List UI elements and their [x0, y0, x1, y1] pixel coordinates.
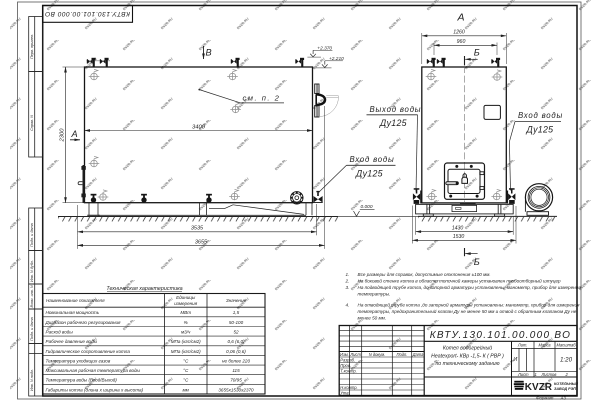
svg-text:70/95: 70/95 [230, 378, 242, 383]
svg-text:Подп. и дата: Подп. и дата [30, 223, 34, 247]
svg-text:Б: Б [474, 47, 480, 57]
svg-text:+2.210: +2.210 [329, 56, 344, 62]
svg-text:4.: 4. [346, 303, 350, 308]
svg-text:На отводящей трубе котла ,до з: На отводящей трубе котла ,до запорной ар… [358, 302, 580, 308]
svg-text:Heatexport- КВр -1,5- К ( РВР: Heatexport- КВр -1,5- К ( РВР ) [431, 353, 504, 359]
svg-text:1:20: 1:20 [560, 357, 573, 364]
svg-text:Выход воды: Выход воды [370, 105, 422, 114]
svg-text:Ду125: Ду125 [379, 118, 407, 128]
svg-text:МПа (кгс/см2): МПа (кгс/см2) [171, 339, 201, 344]
svg-text:Гидравлическое сопротивление к: Гидравлическое сопротивление котла [46, 349, 131, 354]
svg-text:Подп.: Подп. [397, 352, 408, 357]
svg-text:Т.контр.: Т.контр. [340, 369, 357, 374]
svg-text:52: 52 [233, 330, 239, 335]
svg-text:+2.370: +2.370 [317, 46, 332, 52]
svg-text:N докум.: N докум. [369, 352, 386, 357]
svg-text:Листов: Листов [541, 372, 558, 377]
svg-text:А: А [71, 129, 78, 139]
svg-text:Габариты котла (длина х ширина: Габариты котла (длина х ширина х высота) [46, 387, 144, 392]
svg-text:Перв. примен.: Перв. примен. [30, 34, 34, 59]
svg-text:На подводящей трубе котла, д: На подводящей трубе котла, до запорной а… [358, 284, 582, 290]
svg-text:КОТЕЛЬНЫЙ: КОТЕЛЬНЫЙ [554, 382, 578, 386]
svg-text:Инв. N подл.: Инв. N подл. [30, 369, 34, 391]
svg-text:Температура воды (Вход/Выход): Температура воды (Вход/Выход) [46, 378, 118, 383]
svg-text:МПа (кгс/см2): МПа (кгс/см2) [171, 349, 201, 354]
svg-text:Все размеры для справок, допус: Все размеры для справок, допустимые откл… [358, 272, 491, 277]
svg-text:3655х1530х2370: 3655х1530х2370 [218, 387, 254, 392]
svg-text:1,5: 1,5 [233, 310, 240, 315]
svg-text:И: И [513, 357, 517, 363]
svg-text:1.: 1. [346, 272, 350, 277]
svg-text:Пров.: Пров. [340, 363, 351, 368]
svg-text:%: % [184, 320, 188, 325]
svg-text:по техническому заданию: по техническому заданию [435, 361, 499, 367]
svg-text:мм: мм [183, 387, 190, 392]
svg-text:температуры, предохранительный: температуры, предохранительный клапан Ду… [358, 308, 577, 314]
svg-text:Рабочее давление воды: Рабочее давление воды [46, 339, 98, 344]
svg-text:Котел водогрейный: Котел водогрейный [443, 345, 492, 352]
svg-text:Ду125: Ду125 [355, 168, 383, 178]
svg-text:KVZR: KVZR [525, 382, 553, 393]
svg-text:2300: 2300 [60, 128, 66, 143]
svg-text:Дата: Дата [412, 352, 425, 357]
svg-text:Наименование показателя: Наименование показателя [46, 298, 105, 303]
svg-text:0.000: 0.000 [361, 204, 373, 210]
svg-text:Инв. N дубл.: Инв. N дубл. [30, 260, 34, 282]
svg-text:Лист: Лист [349, 352, 361, 357]
svg-text:А: А [457, 12, 465, 24]
svg-text:температуры.: температуры. [358, 291, 391, 296]
svg-text:1530: 1530 [453, 234, 465, 240]
svg-text:не более 220: не более 220 [222, 358, 250, 363]
svg-text:960: 960 [457, 39, 466, 45]
svg-text:Диапазон рабочего регулировани: Диапазон рабочего регулирования [45, 320, 122, 325]
svg-text:Единицы: Единицы [176, 295, 196, 300]
svg-text:Лист: Лист [517, 372, 529, 377]
svg-text:Справ. N: Справ. N [30, 115, 34, 131]
svg-text:1: 1 [535, 372, 537, 377]
svg-text:Лит.: Лит. [517, 343, 528, 348]
svg-text:Формат: Формат [536, 396, 554, 400]
svg-text:Вход воды: Вход воды [518, 111, 563, 120]
svg-text:Н.контр.: Н.контр. [340, 385, 357, 390]
svg-text:В: В [206, 48, 212, 58]
svg-text:см. п. 2: см. п. 2 [243, 94, 281, 103]
svg-text:МВт: МВт [180, 310, 191, 315]
svg-text:Масштаб: Масштаб [556, 343, 576, 348]
svg-text:Номинальная мощность: Номинальная мощность [46, 310, 100, 315]
svg-text:м3/ч: м3/ч [181, 330, 191, 335]
svg-text:Изм.: Изм. [340, 352, 349, 357]
svg-text:°С: °С [183, 358, 189, 363]
svg-text:Вход воды: Вход воды [350, 155, 395, 164]
svg-text:0,6 (6,0): 0,6 (6,0) [227, 339, 245, 344]
svg-text:Техническая характеристика: Техническая характеристика [106, 286, 182, 292]
svg-text:менее 50 мм.: менее 50 мм. [358, 316, 387, 321]
svg-text:Подп. и дата: Подп. и дата [30, 317, 34, 341]
svg-text:измерения: измерения [174, 301, 198, 306]
svg-text:115: 115 [232, 368, 240, 373]
svg-text:3400: 3400 [192, 124, 206, 130]
svg-text:Утв.: Утв. [340, 391, 349, 396]
svg-text:На боковой стенке котла в обла: На боковой стенке котла в области топочн… [358, 277, 562, 283]
svg-text:1260: 1260 [453, 30, 465, 36]
svg-text:3.: 3. [346, 285, 350, 290]
svg-text:50-100: 50-100 [229, 320, 244, 325]
svg-text:°С: °С [183, 378, 189, 383]
svg-text:3655: 3655 [195, 239, 208, 245]
svg-text:2.: 2. [345, 278, 350, 283]
svg-text:Ду125: Ду125 [526, 125, 554, 135]
svg-text:Температура уходящих газов: Температура уходящих газов [46, 358, 111, 363]
svg-text:1430: 1430 [452, 226, 464, 232]
svg-text:КВТУ.130.101.00.000 ВО: КВТУ.130.101.00.000 ВО [45, 10, 130, 17]
svg-text:°С: °С [183, 368, 189, 373]
svg-text:Максимальная рабочая температу: Максимальная рабочая температура воды [46, 368, 141, 373]
svg-text:Значение: Значение [226, 298, 247, 303]
svg-text:Разраб.: Разраб. [340, 358, 355, 363]
svg-text:Б: Б [474, 257, 480, 267]
svg-text:КВТУ.130.101.00.000 ВО: КВТУ.130.101.00.000 ВО [430, 330, 572, 341]
svg-text:0,06 (0,6): 0,06 (0,6) [226, 349, 246, 354]
svg-text:Взам. инв. N: Взам. инв. N [30, 285, 34, 307]
svg-text:ЗАВОД РЭП: ЗАВОД РЭП [554, 387, 576, 391]
svg-text:Масса: Масса [538, 343, 551, 348]
svg-text:Расход воды: Расход воды [46, 330, 74, 335]
svg-text:3535: 3535 [191, 226, 204, 232]
svg-text:А3: А3 [560, 396, 567, 400]
